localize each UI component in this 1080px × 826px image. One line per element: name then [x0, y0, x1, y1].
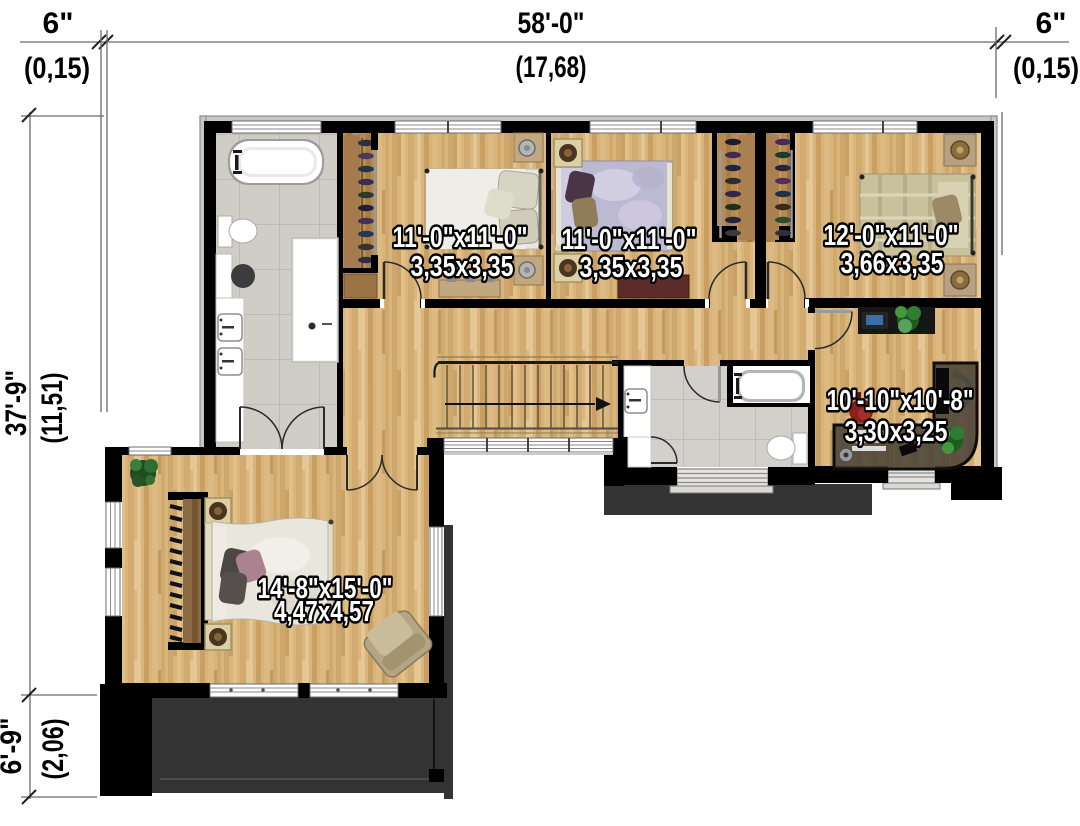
svg-text:3,30x3,25: 3,30x3,25 [845, 416, 948, 448]
svg-text:3,35x3,35: 3,35x3,35 [580, 252, 683, 284]
svg-text:3,35x3,35: 3,35x3,35 [411, 251, 514, 283]
svg-text:6": 6" [1036, 7, 1067, 40]
svg-text:(0,15): (0,15) [1013, 52, 1079, 85]
svg-text:58'-0": 58'-0" [518, 7, 585, 40]
svg-text:6'-9": 6'-9" [0, 718, 28, 775]
svg-text:(17,68): (17,68) [516, 51, 587, 84]
svg-text:4,47x4,57: 4,47x4,57 [274, 596, 374, 628]
svg-text:3,66x3,35: 3,66x3,35 [841, 248, 944, 280]
svg-text:37'-9": 37'-9" [0, 370, 33, 436]
svg-text:6": 6" [43, 7, 74, 40]
svg-text:(11,51): (11,51) [36, 373, 69, 444]
svg-text:(0,15): (0,15) [24, 52, 90, 85]
svg-text:10'-10"x10'-8": 10'-10"x10'-8" [827, 385, 974, 417]
svg-text:(2,06): (2,06) [37, 719, 70, 780]
svg-text:11'-0"x11'-0": 11'-0"x11'-0" [393, 222, 528, 254]
